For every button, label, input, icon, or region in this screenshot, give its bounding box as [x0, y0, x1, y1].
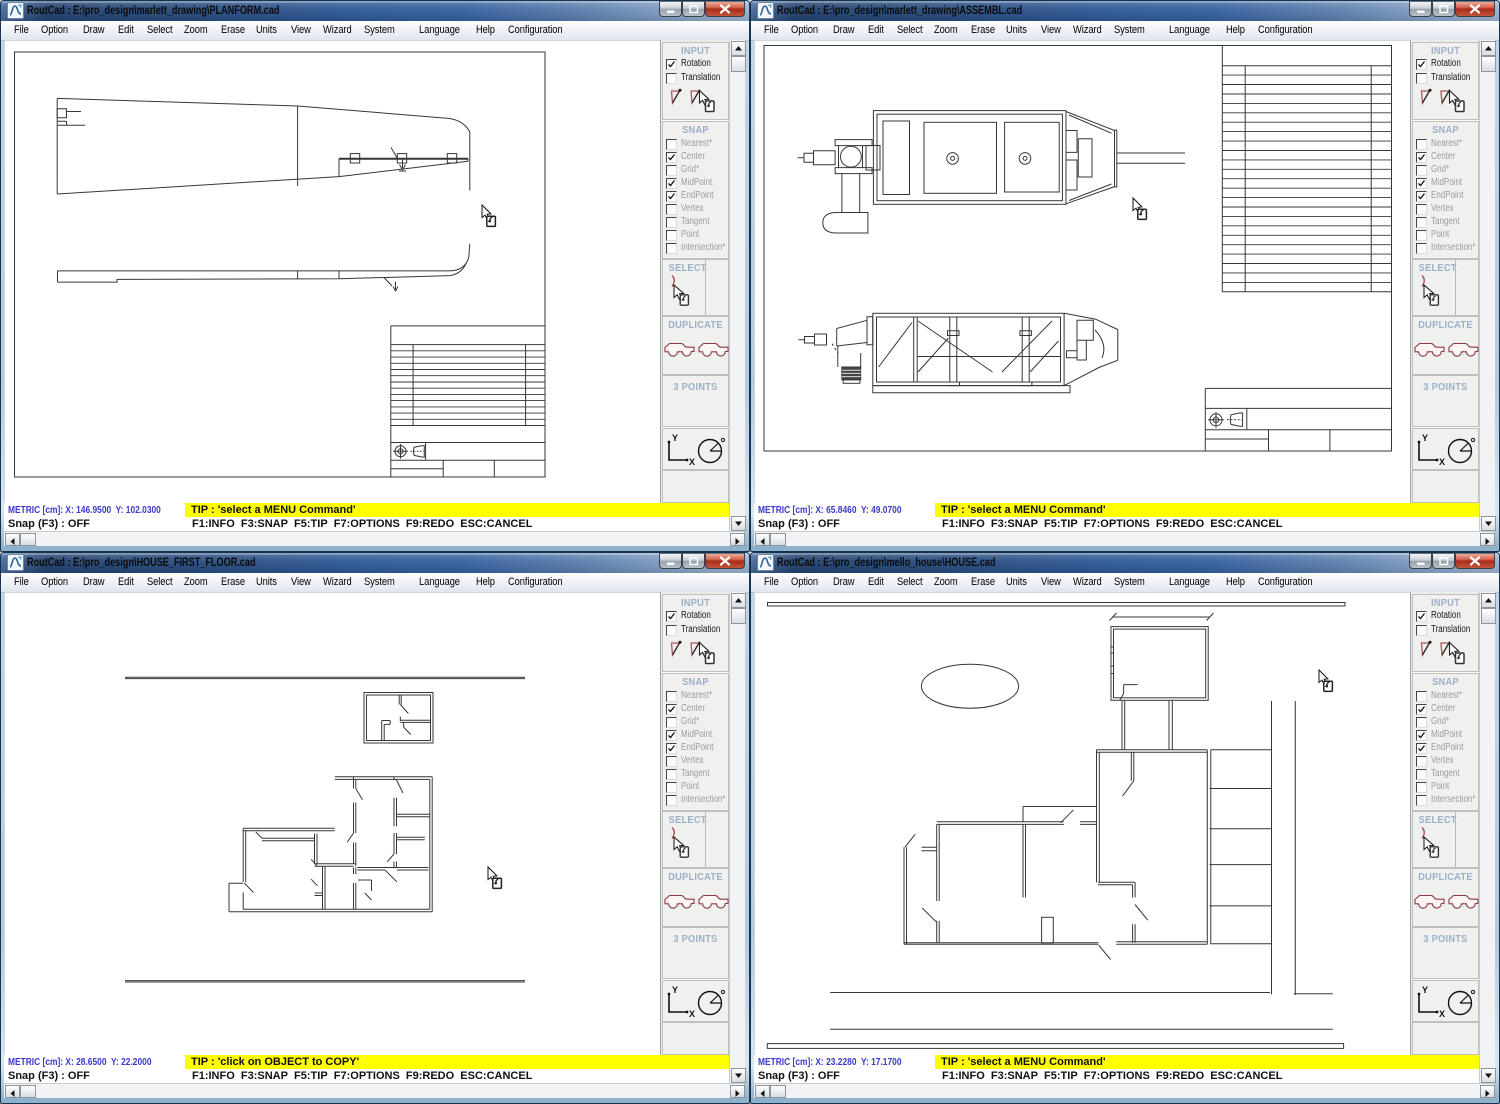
svg-text:X: X [1439, 457, 1445, 467]
svg-text:Y: Y [1422, 985, 1428, 995]
svg-text:X: X [1439, 1009, 1445, 1019]
svg-text:X: X [689, 457, 695, 467]
svg-text:Y: Y [672, 985, 678, 995]
svg-text:Y: Y [1422, 433, 1428, 443]
svg-text:Y: Y [672, 433, 678, 443]
svg-text:X: X [689, 1009, 695, 1019]
